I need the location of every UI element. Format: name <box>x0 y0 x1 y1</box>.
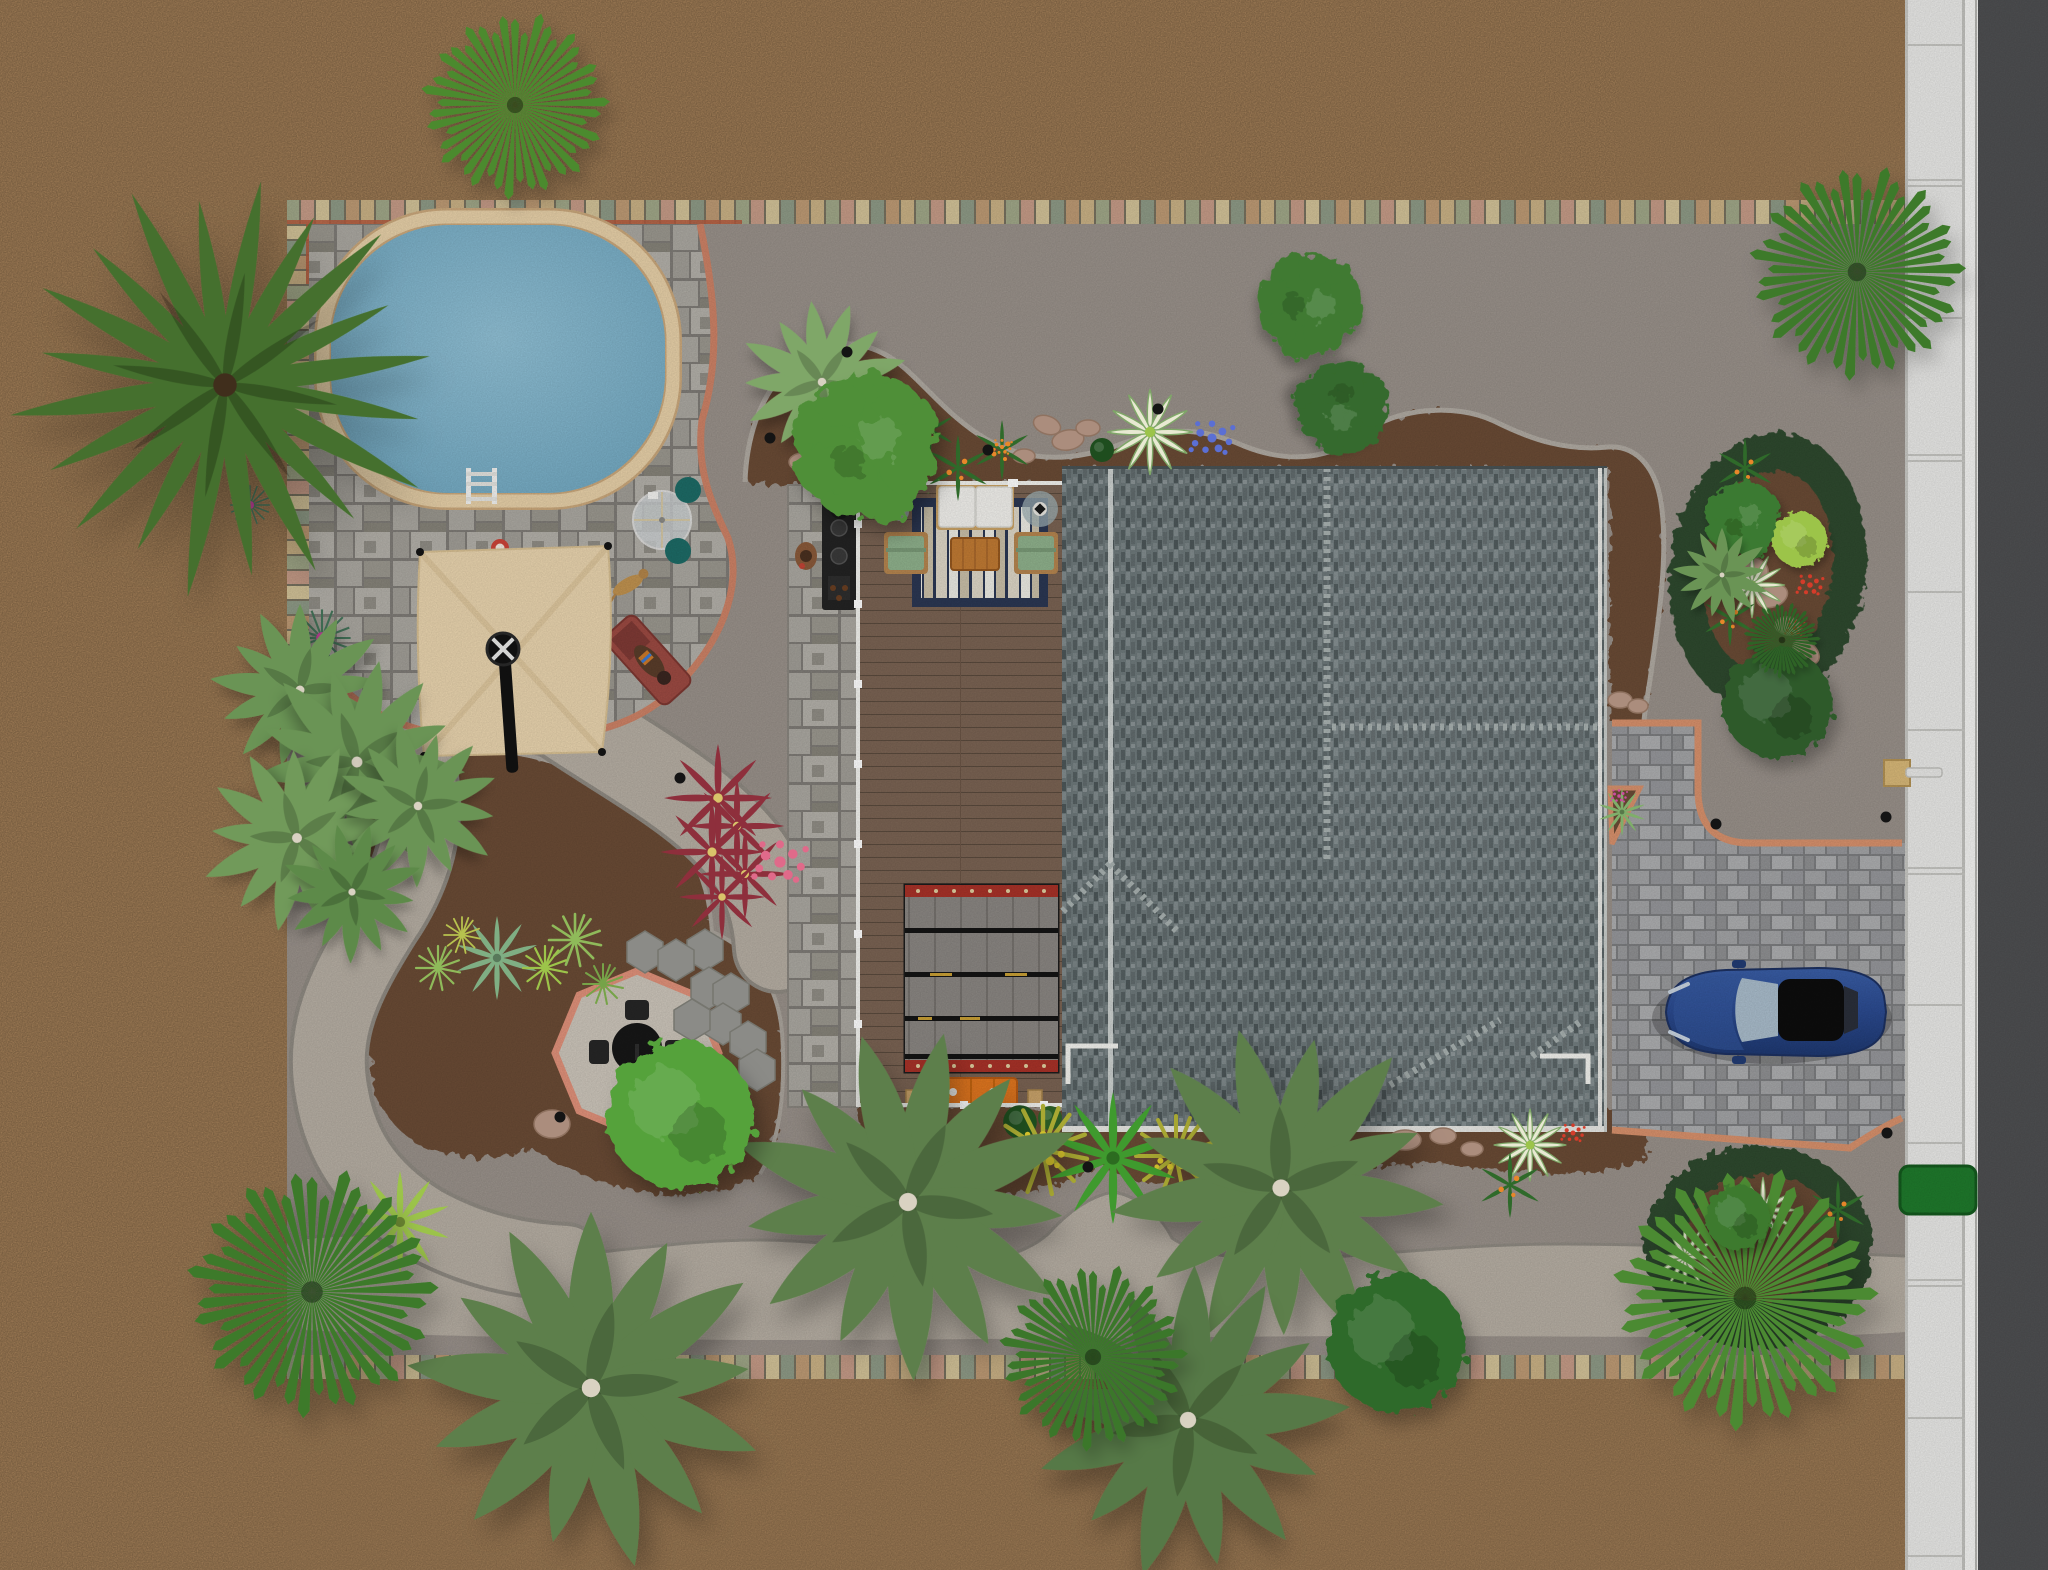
bush-tree[interactable] <box>607 1042 754 1189</box>
boulder[interactable] <box>1013 449 1035 463</box>
landscape-light[interactable] <box>1153 404 1164 415</box>
ball-plant[interactable] <box>1090 438 1114 462</box>
bush-tree[interactable] <box>1772 512 1827 567</box>
bush-tree[interactable] <box>1723 649 1833 759</box>
landscape-light[interactable] <box>983 445 994 456</box>
landscape-light[interactable] <box>1083 1162 1094 1173</box>
landscape-canvas[interactable] <box>0 0 2048 1570</box>
coleus-plant[interactable] <box>679 854 765 940</box>
boulder[interactable] <box>1628 699 1648 713</box>
landscape-light[interactable] <box>842 347 853 358</box>
landscape-light[interactable] <box>555 1112 566 1123</box>
landscape-plan-stage <box>0 0 2048 1570</box>
landscape-light[interactable] <box>1882 1128 1893 1139</box>
landscape-light[interactable] <box>1881 812 1892 823</box>
boulder[interactable] <box>1430 1128 1456 1144</box>
boulder[interactable] <box>1461 1142 1483 1156</box>
landscape-light[interactable] <box>765 433 776 444</box>
bush-tree[interactable] <box>1706 1186 1770 1250</box>
bush-tree[interactable] <box>1328 1275 1466 1413</box>
coleus-plant[interactable] <box>664 744 772 852</box>
landscape-light[interactable] <box>675 773 686 784</box>
boulder[interactable] <box>1076 420 1100 436</box>
landscape-light[interactable] <box>1711 819 1722 830</box>
